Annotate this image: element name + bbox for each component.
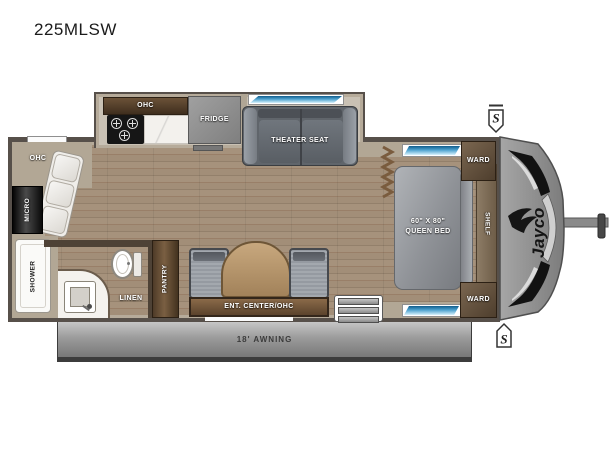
fridge-vent — [193, 145, 223, 151]
burner-icon — [119, 130, 130, 141]
shelf-label: SHELF — [483, 212, 490, 235]
shower-enclosure: SHOWER — [12, 236, 58, 318]
bed-size-label: 60" x 80" — [394, 218, 462, 226]
marker-bottom-letter: S — [500, 332, 507, 347]
bench-backrest — [293, 252, 325, 261]
theater-seat: THEATER SEAT — [242, 106, 358, 166]
bedroom-bottom-window — [402, 304, 461, 317]
theater-armrest-left — [244, 108, 257, 164]
zigzag-decor-icon — [380, 145, 395, 202]
hitch-jack — [598, 214, 605, 238]
kitchen-ohc-cabinet: OHC — [103, 97, 188, 115]
burner-icon — [111, 118, 122, 129]
micro-label: MICRO — [24, 198, 31, 222]
wardrobe-top: WARD — [461, 141, 496, 181]
dinette-bench-right — [289, 248, 329, 299]
window-glass — [404, 306, 459, 315]
ward-bottom-label: WARD — [467, 296, 490, 304]
ent-center-sill — [205, 317, 293, 321]
bath-partition-wall — [44, 240, 152, 247]
ent-center-label: ENT. CENTER/OHC — [224, 303, 293, 311]
brand-logo-text: Jayco — [529, 207, 548, 258]
pantry-cabinet: PANTRY — [152, 240, 179, 318]
toilet-tank — [133, 252, 142, 277]
fridge: FRIDGE — [188, 96, 241, 144]
theater-window — [248, 94, 344, 105]
bath-sink — [64, 281, 96, 313]
pantry-label: PANTRY — [162, 265, 169, 293]
stove — [107, 115, 144, 144]
shower-label-wrap: SHOWER — [16, 240, 50, 312]
toilet-flush-icon — [127, 262, 130, 265]
theater-armrest-right — [343, 108, 356, 164]
kitchen-ohc-label: OHC — [137, 102, 154, 110]
corner-bench-cushion — [51, 153, 82, 183]
awning-label: 18' AWNING — [237, 335, 293, 344]
stab-jack-marker-bottom: S — [493, 322, 515, 352]
awning-bar: 18' AWNING — [57, 321, 472, 362]
bedroom-top-window — [402, 144, 462, 157]
step — [338, 316, 379, 323]
queen-bed: 60" x 80" QUEEN BED — [394, 166, 474, 290]
corner-bench-cushion — [39, 205, 70, 235]
theater-seat-label: THEATER SEAT — [243, 137, 357, 145]
wardrobe-bottom: WARD — [460, 282, 497, 318]
floorplan-title: 225MLSW — [34, 20, 117, 40]
window-glass — [250, 96, 342, 103]
toilet-bowl — [111, 249, 134, 279]
burner-icon — [127, 118, 138, 129]
fridge-label: FRIDGE — [200, 116, 229, 124]
marker-top-letter: S — [492, 111, 499, 126]
floorplan-canvas: 225MLSW 18' AWNING OHC MICRO SHOWER — [0, 0, 614, 460]
entry-steps — [334, 295, 383, 322]
corner-bench-cushion — [45, 179, 76, 209]
shower-pan: SHOWER — [15, 239, 51, 313]
bench-backrest — [193, 252, 225, 261]
kitchen-counter — [144, 115, 189, 144]
ward-top-label: WARD — [467, 157, 490, 165]
shower-label: SHOWER — [30, 260, 37, 292]
stab-jack-marker-top: S — [485, 103, 507, 135]
shelf: SHELF — [476, 164, 497, 284]
entertainment-center: ENT. CENTER/OHC — [189, 297, 329, 317]
dinette-table — [221, 241, 291, 298]
step — [338, 307, 379, 314]
bed-type-label: QUEEN BED — [394, 228, 462, 236]
window-glass — [404, 146, 460, 155]
front-cap: Jayco — [498, 130, 614, 330]
step — [338, 298, 379, 305]
microwave: MICRO — [12, 186, 43, 234]
linen-label: LINEN — [110, 295, 152, 303]
